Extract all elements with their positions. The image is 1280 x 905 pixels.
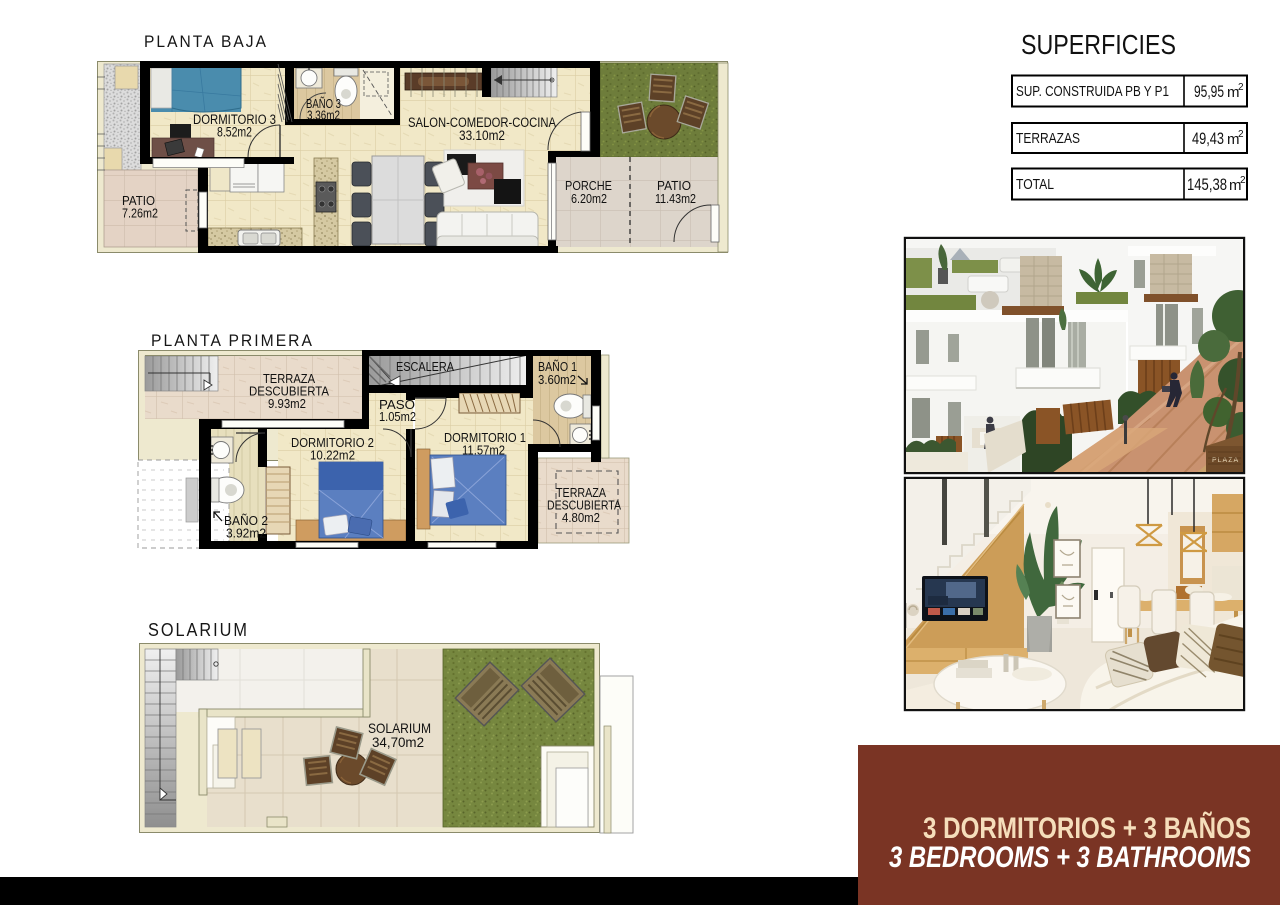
svg-text:PLANTA BAJA: PLANTA BAJA	[144, 32, 268, 51]
svg-text:TERRAZAS: TERRAZAS	[1016, 131, 1080, 147]
svg-text:11.57m2: 11.57m2	[462, 443, 505, 458]
svg-text:SOLARIUM: SOLARIUM	[148, 620, 249, 640]
svg-text:4.80m2: 4.80m2	[562, 511, 600, 525]
svg-text:8.52m2: 8.52m2	[217, 125, 252, 140]
svg-text:SUP. CONSTRUIDA PB Y P1: SUP. CONSTRUIDA PB Y P1	[1016, 84, 1169, 100]
svg-text:49,43: 49,43	[1192, 129, 1224, 148]
svg-text:2: 2	[1238, 82, 1244, 93]
svg-text:PLANTA PRIMERA: PLANTA PRIMERA	[151, 331, 314, 350]
svg-text:6.20m2: 6.20m2	[571, 191, 607, 206]
svg-text:9.93m2: 9.93m2	[268, 396, 306, 411]
svg-text:1.05m2: 1.05m2	[379, 410, 416, 424]
svg-text:BAÑO 1: BAÑO 1	[538, 360, 577, 374]
svg-text:2: 2	[1238, 129, 1244, 140]
svg-text:145,38: 145,38	[1187, 175, 1227, 194]
svg-text:3 BEDROOMS + 3 BATHROOMS: 3 BEDROOMS + 3 BATHROOMS	[889, 841, 1251, 874]
svg-text:3 DORMITORIOS + 3 BAÑOS: 3 DORMITORIOS + 3 BAÑOS	[923, 811, 1251, 845]
svg-text:7.26m2: 7.26m2	[122, 206, 158, 221]
svg-text:11.43m2: 11.43m2	[655, 191, 696, 206]
svg-text:95,95: 95,95	[1194, 82, 1224, 101]
svg-text:34,70m2: 34,70m2	[372, 734, 424, 750]
svg-text:10.22m2: 10.22m2	[310, 448, 355, 463]
svg-text:3.60m2: 3.60m2	[538, 373, 576, 387]
svg-text:2: 2	[1240, 175, 1246, 186]
svg-text:3.92m2: 3.92m2	[226, 527, 266, 541]
svg-text:SUPERFICIES: SUPERFICIES	[1021, 29, 1176, 60]
svg-text:3.36m2: 3.36m2	[307, 109, 340, 123]
svg-text:33.10m2: 33.10m2	[459, 128, 505, 143]
svg-text:TOTAL: TOTAL	[1016, 177, 1054, 193]
svg-text:ESCALERA: ESCALERA	[396, 360, 455, 374]
